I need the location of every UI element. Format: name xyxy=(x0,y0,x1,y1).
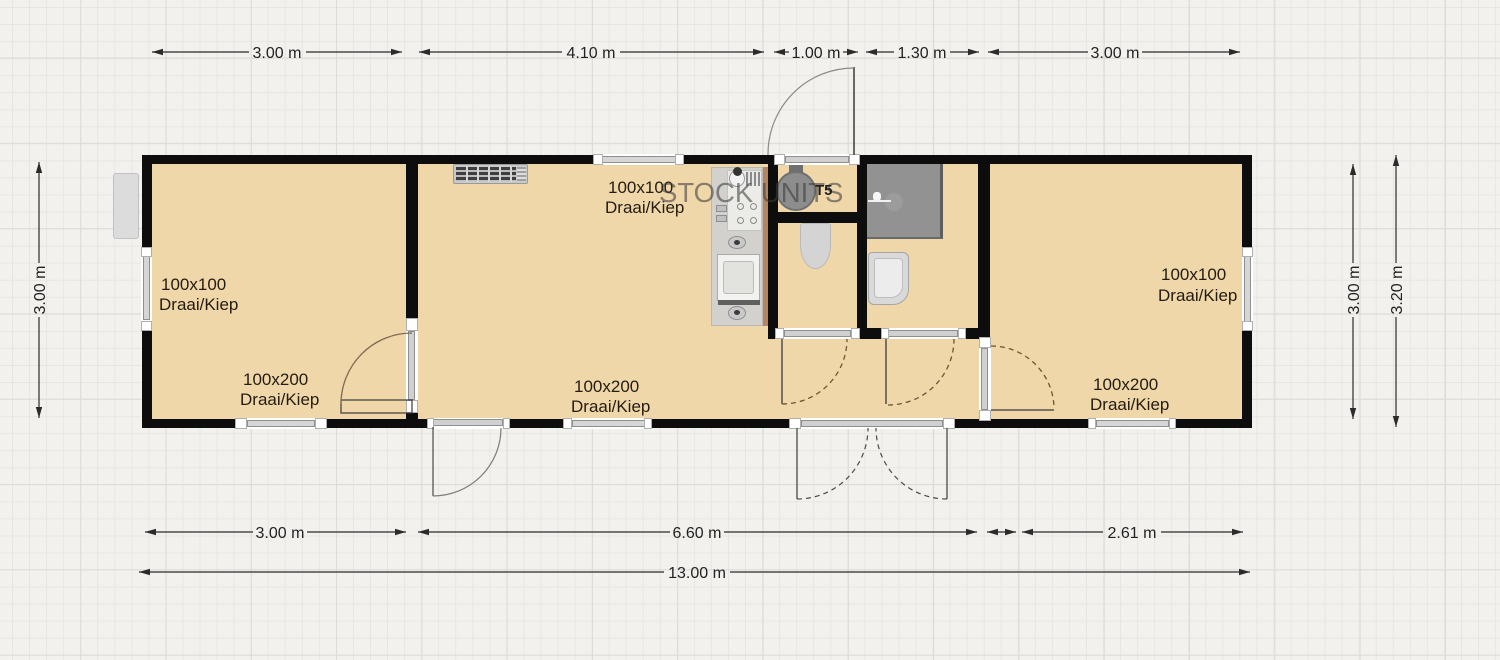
svg-text:3.00 m: 3.00 m xyxy=(1346,266,1363,315)
svg-text:1.00 m: 1.00 m xyxy=(792,45,841,62)
svg-text:3.00 m: 3.00 m xyxy=(1091,45,1140,62)
svg-text:3.20 m: 3.20 m xyxy=(1389,266,1406,315)
svg-text:6.60 m: 6.60 m xyxy=(673,525,722,542)
svg-text:13.00 m: 13.00 m xyxy=(668,565,726,582)
svg-text:3.00 m: 3.00 m xyxy=(253,45,302,62)
svg-text:3.00 m: 3.00 m xyxy=(256,525,305,542)
svg-text:1.30 m: 1.30 m xyxy=(898,45,947,62)
svg-text:4.10 m: 4.10 m xyxy=(567,45,616,62)
svg-text:2.61 m: 2.61 m xyxy=(1108,525,1157,542)
svg-text:3.00 m: 3.00 m xyxy=(32,266,49,315)
